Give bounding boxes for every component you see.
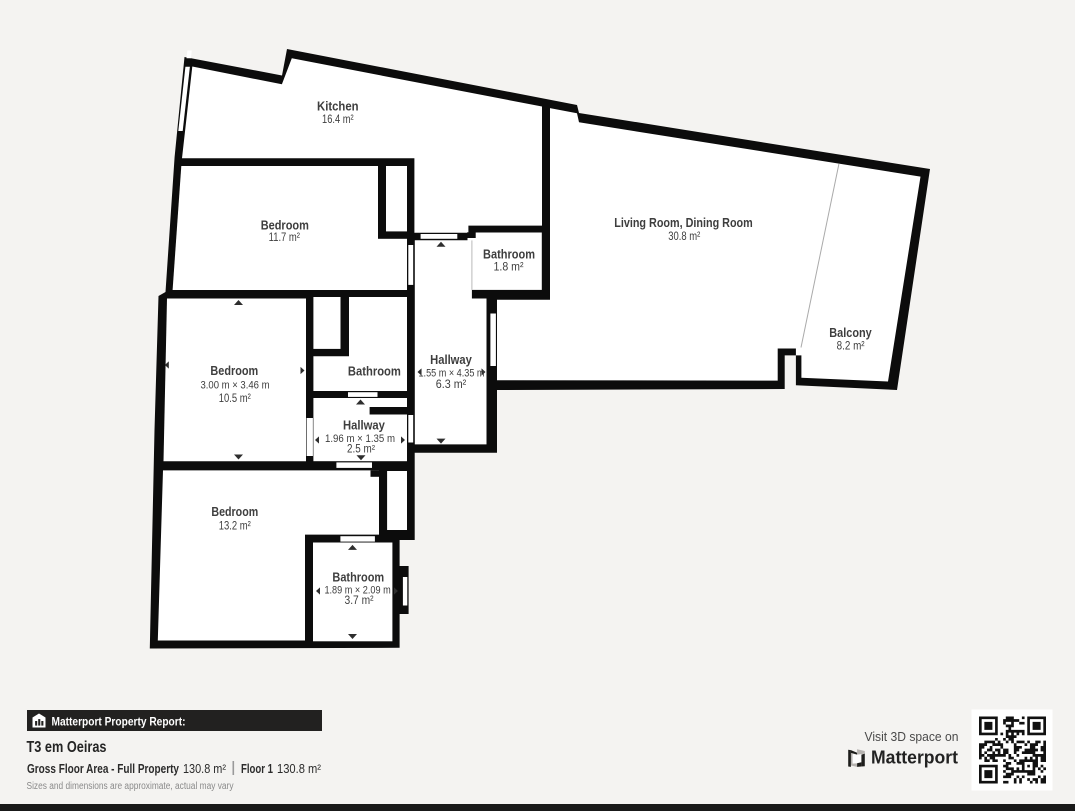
svg-text:16.4 m²: 16.4 m² [322,112,354,126]
svg-text:Matterport: Matterport [871,748,958,768]
svg-text:11.7 m²: 11.7 m² [269,230,300,244]
svg-text:8.2 m²: 8.2 m² [837,339,865,353]
svg-text:1.8 m²: 1.8 m² [494,259,524,273]
svg-text:6.3 m²: 6.3 m² [436,377,467,391]
svg-text:Bedroom: Bedroom [210,363,258,378]
svg-text:3.00 m × 3.46 m: 3.00 m × 3.46 m [201,379,270,391]
svg-text:Bathroom: Bathroom [348,364,401,379]
svg-text:T3 em Oeiras: T3 em Oeiras [27,739,107,756]
svg-text:13.2 m²: 13.2 m² [219,519,251,533]
svg-text:3.7 m²: 3.7 m² [345,593,374,607]
svg-text:130.8 m²: 130.8 m² [277,761,322,776]
svg-text:Bedroom: Bedroom [211,504,258,519]
svg-text:30.8 m²: 30.8 m² [668,229,700,243]
svg-text:130.8 m²: 130.8 m² [183,761,227,776]
svg-text:Hallway: Hallway [343,418,386,433]
svg-text:Gross Floor Area - Full Proper: Gross Floor Area - Full Property [27,761,180,776]
svg-text:Hallway: Hallway [430,352,472,367]
svg-text:Visit 3D space on: Visit 3D space on [865,729,959,744]
svg-text:Floor 1: Floor 1 [241,761,273,776]
svg-text:Sizes and dimensions are appro: Sizes and dimensions are approximate, ac… [27,781,234,792]
svg-text:2.5 m²: 2.5 m² [347,444,375,456]
svg-text:10.5 m²: 10.5 m² [219,391,251,405]
svg-text:Living Room, Dining Room: Living Room, Dining Room [614,215,753,230]
svg-text:Bathroom: Bathroom [332,570,384,585]
svg-text:Matterport Property Report:: Matterport Property Report: [52,715,186,729]
